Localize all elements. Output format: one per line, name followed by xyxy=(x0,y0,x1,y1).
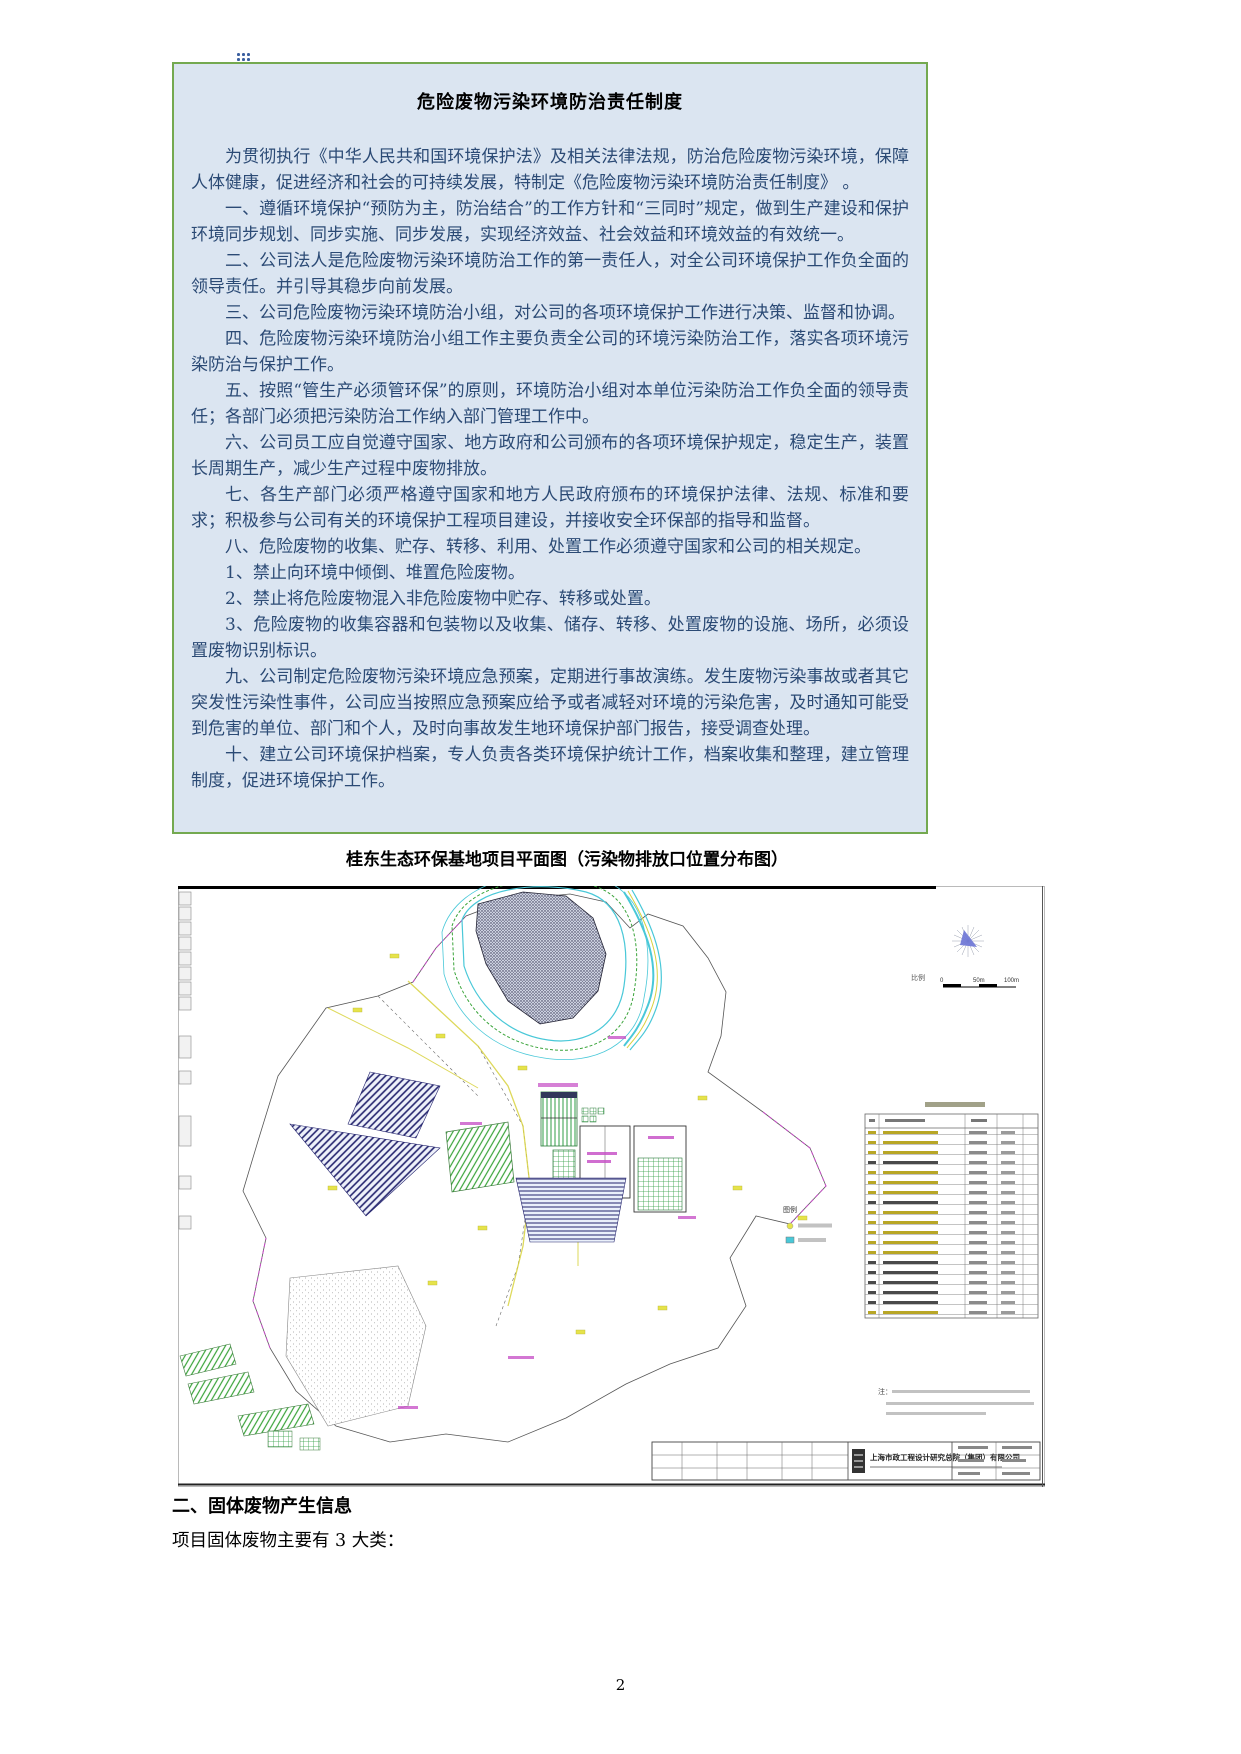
policy-paragraph: 为贯彻执行《中华人民共和国环境保护法》及相关法律法规，防治危险废物污染环境，保障… xyxy=(191,144,909,196)
scale-tick-100: 100m xyxy=(1004,978,1019,984)
policy-paragraph: 2、禁止将危险废物混入非危险废物中贮存、转移或处置。 xyxy=(191,586,909,612)
policy-paragraph: 四、危险废物污染环境防治小组工作主要负责全公司的环境污染防治工作，落实各项环境污… xyxy=(191,326,909,378)
document-page: 危险废物污染环境防治责任制度 为贯彻执行《中华人民共和国环境保护法》及相关法律法… xyxy=(0,0,1241,1754)
policy-paragraph: 3、危险废物的收集容器和包装物以及收集、储存、转移、处置废物的设施、场所，必须设… xyxy=(191,612,909,664)
policy-paragraph: 三、公司危险废物污染环境防治小组，对公司的各项环境保护工作进行决策、监督和协调。 xyxy=(191,300,909,326)
policy-paragraph: 一、遵循环境保护“预防为主，防治结合”的工作方针和“三同时”规定，做到生产建设和… xyxy=(191,196,909,248)
policy-paragraph: 七、各生产部门必须严格遵守国家和地方人民政府颁布的环境保护法律、法规、标准和要求… xyxy=(191,482,909,534)
legend-title: 图例 xyxy=(783,1205,797,1214)
notes-label: 注： xyxy=(878,1387,892,1396)
policy-paragraph: 十、建立公司环境保护档案，专人负责各类环境保护统计工作，档案收集和整理，建立管理… xyxy=(191,742,909,794)
green-slat-structures xyxy=(446,1122,514,1192)
policy-paragraph: 1、禁止向环境中倾倒、堆置危险废物。 xyxy=(191,560,909,586)
title-block: 上海市政工程设计研究总院（集团）有限公司 xyxy=(652,1442,1040,1480)
policy-paragraph: 九、公司制定危险废物污染环境应急预案，定期进行事故演练。发生废物污染事故或者其它… xyxy=(191,664,909,742)
policy-paragraphs: 为贯彻执行《中华人民共和国环境保护法》及相关法律法规，防治危险废物污染环境，保障… xyxy=(191,144,909,794)
policy-paragraph: 五、按照“管生产必须管环保”的原则，环境防治小组对本单位污染防治工作负全面的领导… xyxy=(191,378,909,430)
scale-label: 比例 xyxy=(911,973,925,982)
site-plan-figure: 比例 0 50m 100m xyxy=(178,886,1045,1487)
policy-paragraph: 八、危险废物的收集、贮存、转移、利用、处置工作必须遵守国家和公司的相关规定。 xyxy=(191,534,909,560)
site-plan-svg: 比例 0 50m 100m xyxy=(178,886,1045,1487)
building-schedule-table xyxy=(865,1102,1038,1318)
section-body: 项目固体废物主要有 3 大类： xyxy=(172,1527,404,1552)
policy-paragraph: 六、公司员工应自觉遵守国家、地方政府和公司颁布的各项环境保护规定，稳定生产，装置… xyxy=(191,430,909,482)
policy-box: 危险废物污染环境防治责任制度 为贯彻执行《中华人民共和国环境保护法》及相关法律法… xyxy=(172,62,928,834)
section-heading: 二、固体废物产生信息 xyxy=(172,1492,352,1518)
policy-paragraph: 二、公司法人是危险废物污染环境防治工作的第一责任人，对全公司环境保护工作负全面的… xyxy=(191,248,909,300)
pond-area xyxy=(516,1178,626,1242)
design-company-name: 上海市政工程设计研究总院（集团）有限公司 xyxy=(870,1452,1020,1462)
figure-caption: 桂东生态环保基地项目平面图（污染物排放口位置分布图） xyxy=(172,845,962,870)
page-number: 2 xyxy=(0,1676,1241,1694)
policy-title: 危险废物污染环境防治责任制度 xyxy=(191,88,909,114)
scale-tick-50: 50m xyxy=(973,978,985,984)
